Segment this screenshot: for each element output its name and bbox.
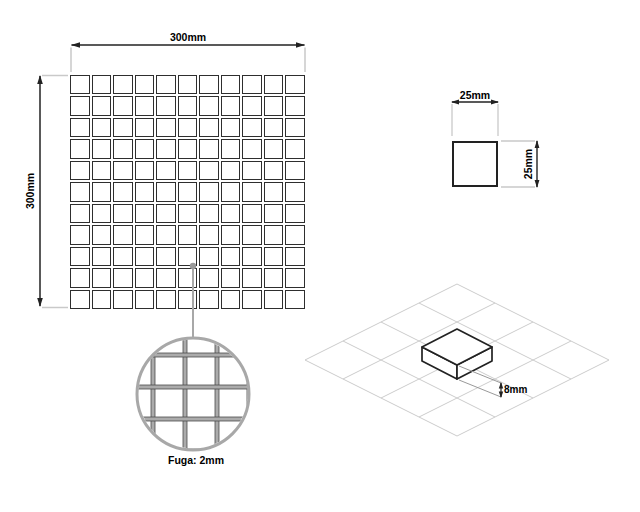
mosaic-tile [92,247,112,266]
mosaic-tile [92,225,112,244]
mosaic-tile [199,118,219,137]
mosaic-tile [156,247,176,266]
tile-3d-box [422,329,492,379]
mosaic-tile [135,75,155,94]
mosaic-tile [285,139,305,158]
mosaic-tile [199,268,219,287]
mosaic-tile [135,268,155,287]
mosaic-tile [221,290,241,309]
isometric-grid [305,284,609,436]
mosaic-tile [70,96,90,115]
thickness-label: 8mm [504,384,544,396]
mosaic-tile [70,161,90,180]
mosaic-tile [221,247,241,266]
mosaic-tile [92,96,112,115]
mosaic-tile [242,139,262,158]
mosaic-tile [285,247,305,266]
mosaic-tile [70,204,90,223]
grout-label: Fuga: 2mm [133,454,259,466]
mosaic-tile [92,75,112,94]
mosaic-height-dimension [37,75,68,308]
arrow-down-icon [535,180,540,188]
mosaic-width-dimension [71,42,305,72]
mosaic-tile [92,118,112,137]
mosaic-tile [156,161,176,180]
mosaic-tile [221,139,241,158]
mosaic-tile [242,161,262,180]
chip-width-dimension [451,100,499,136]
chip-square [452,141,498,187]
mosaic-tile [178,182,198,201]
mosaic-tile [264,290,284,309]
mosaic-tile [285,75,305,94]
mosaic-tile [135,290,155,309]
mosaic-tile [285,268,305,287]
chip-width-label: 25mm [445,89,505,101]
arrow-down-icon [37,298,43,307]
mosaic-tile [135,225,155,244]
mosaic-tile [264,75,284,94]
mosaic-tile [156,225,176,244]
mosaic-tile [156,118,176,137]
mosaic-tile [135,118,155,137]
mosaic-tile [264,182,284,201]
mosaic-tile [199,290,219,309]
mosaic-tile [285,96,305,115]
mosaic-grid [70,75,305,309]
mosaic-tile [221,75,241,94]
mosaic-tile [242,204,262,223]
mosaic-tile [221,182,241,201]
mosaic-tile [242,268,262,287]
mosaic-tile [113,247,133,266]
mosaic-tile [113,225,133,244]
mosaic-tile [113,96,133,115]
mosaic-tile [92,204,112,223]
mosaic-tile [156,182,176,201]
mosaic-tile [199,182,219,201]
mosaic-tile [92,182,112,201]
mosaic-tile [199,247,219,266]
mosaic-tile [156,204,176,223]
mosaic-tile [70,225,90,244]
mosaic-tile [113,118,133,137]
mosaic-tile [70,247,90,266]
mosaic-tile [178,290,198,309]
drawing-canvas: 300mm 300mm 25mm 25mm Fuga: 2mm 8mm [0,0,640,512]
isometric-view [305,284,609,436]
mosaic-tile [113,75,133,94]
mosaic-tile [135,247,155,266]
mosaic-tile [264,161,284,180]
mosaic-tile [199,139,219,158]
arrow-left-icon [71,42,80,48]
mosaic-tile [178,118,198,137]
mosaic-height-label: 300mm [24,161,36,221]
mosaic-tile [221,204,241,223]
thickness-dimension [459,366,503,398]
mosaic-tile [178,161,198,180]
mosaic-tile [70,268,90,287]
mosaic-tile [92,268,112,287]
mosaic-tile [135,161,155,180]
arrow-down-icon [499,392,503,399]
mosaic-tile [221,96,241,115]
mosaic-tile [92,290,112,309]
mosaic-tile [285,204,305,223]
mosaic-tile [264,204,284,223]
mosaic-tile [113,204,133,223]
mosaic-tile [242,290,262,309]
mosaic-tile [156,290,176,309]
mosaic-tile [135,96,155,115]
mosaic-tile [199,225,219,244]
mosaic-tile [113,290,133,309]
mosaic-tile [285,290,305,309]
mosaic-tile [264,225,284,244]
mosaic-tile [264,247,284,266]
mosaic-tile [135,139,155,158]
mosaic-tile [92,161,112,180]
mosaic-tile [221,268,241,287]
mosaic-tile [242,75,262,94]
mosaic-tile [242,247,262,266]
mosaic-tile [113,161,133,180]
mosaic-tile [242,96,262,115]
mosaic-tile [70,139,90,158]
mosaic-tile [221,118,241,137]
mosaic-tile [70,75,90,94]
arrow-up-icon [535,140,540,148]
mosaic-tile [199,96,219,115]
mosaic-tile [70,290,90,309]
mosaic-tile [92,139,112,158]
mosaic-tile [113,268,133,287]
mosaic-width-label: 300mm [158,31,218,43]
mosaic-tile [178,139,198,158]
arrow-right-icon [296,42,305,48]
mosaic-tile [199,75,219,94]
mosaic-tile [199,161,219,180]
mosaic-tile [242,118,262,137]
mosaic-tile [285,182,305,201]
mosaic-tile [264,118,284,137]
mosaic-tile [178,96,198,115]
chip-height-label: 25mm [522,134,534,194]
mosaic-tile [135,204,155,223]
mosaic-tile [156,139,176,158]
mosaic-tile [178,204,198,223]
mosaic-tile [135,182,155,201]
mosaic-tile [156,96,176,115]
mosaic-tile [221,161,241,180]
mosaic-tile [221,225,241,244]
mosaic-tile [285,225,305,244]
mosaic-tile [285,161,305,180]
mosaic-tile [178,75,198,94]
mosaic-tile [264,139,284,158]
mosaic-tile [264,268,284,287]
mosaic-tile [178,247,198,266]
mosaic-tile [70,182,90,201]
mosaic-tile [178,268,198,287]
mosaic-tile [178,225,198,244]
mosaic-tile [199,204,219,223]
mosaic-tile [113,139,133,158]
mosaic-tile [285,118,305,137]
mosaic-tile [113,182,133,201]
magnified-grout-pattern [134,334,252,454]
arrow-up-icon [37,75,43,84]
mosaic-tile [70,118,90,137]
arrow-up-icon [499,382,503,389]
mosaic-tile [156,75,176,94]
mosaic-tile [264,96,284,115]
mosaic-tile [156,268,176,287]
mosaic-tile [242,182,262,201]
mosaic-tile [242,225,262,244]
magnifier-circle [137,338,249,450]
